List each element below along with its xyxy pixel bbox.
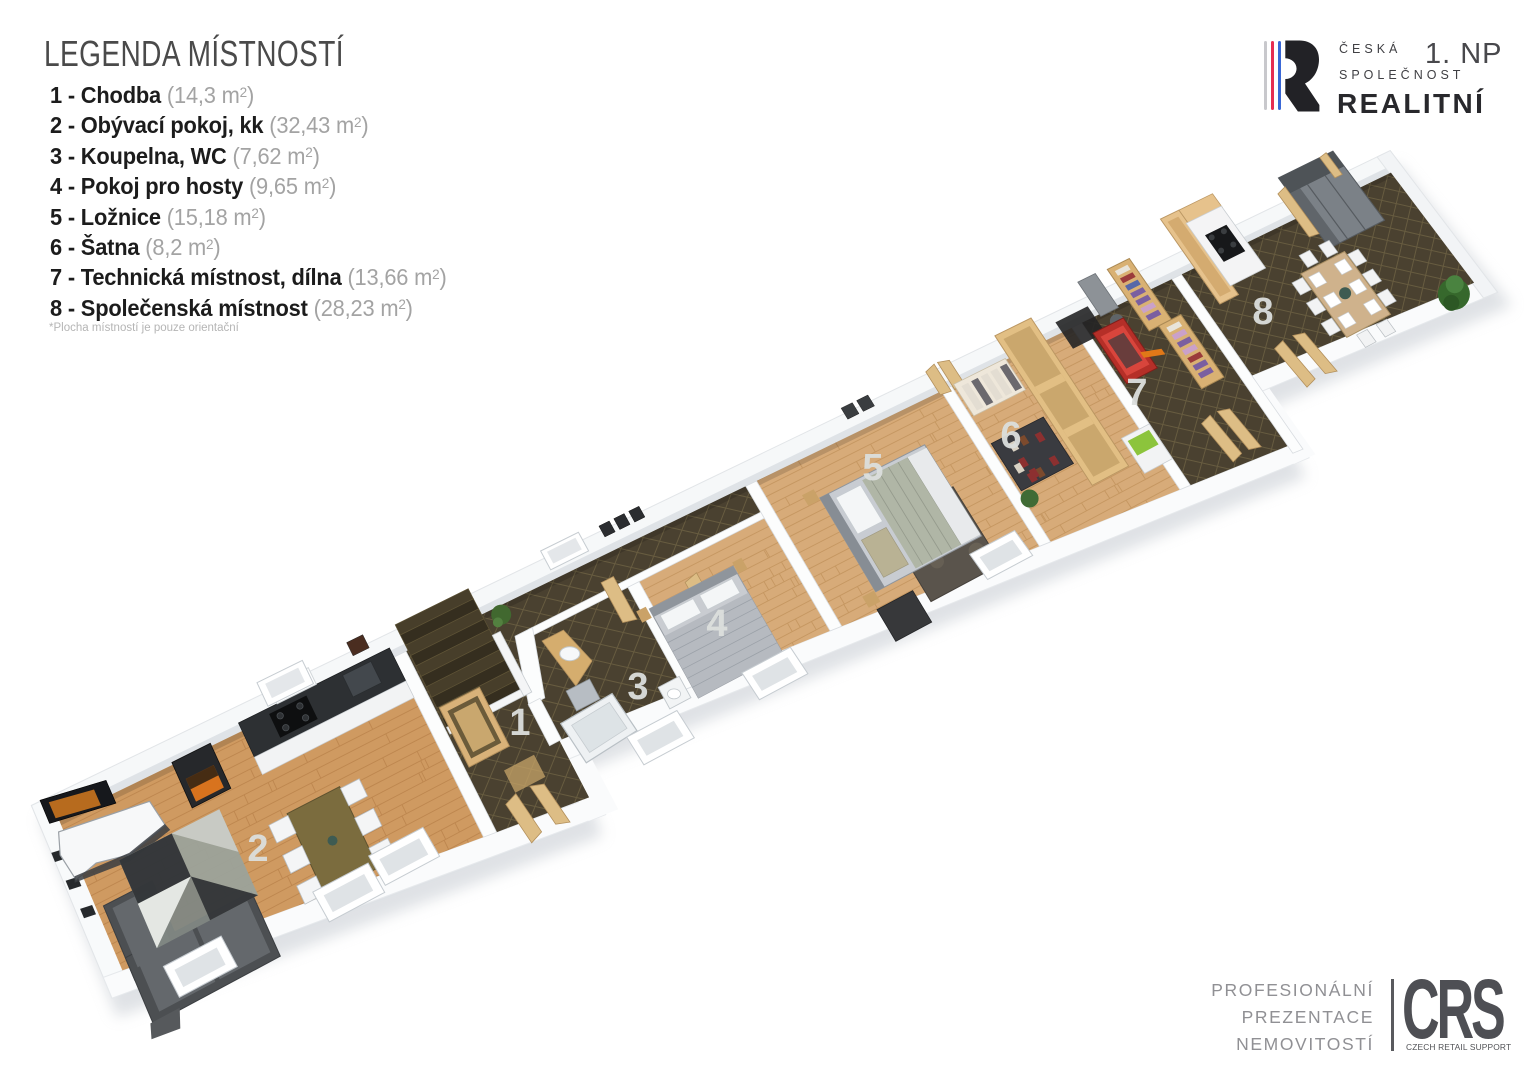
svg-text:2: 2 xyxy=(247,828,268,870)
svg-text:6: 6 xyxy=(1000,415,1021,457)
svg-text:7: 7 xyxy=(1126,372,1147,414)
svg-text:3: 3 xyxy=(627,666,648,708)
svg-text:1: 1 xyxy=(509,702,530,744)
svg-text:5: 5 xyxy=(862,447,883,489)
svg-text:4: 4 xyxy=(706,603,727,645)
svg-text:8: 8 xyxy=(1252,291,1273,333)
